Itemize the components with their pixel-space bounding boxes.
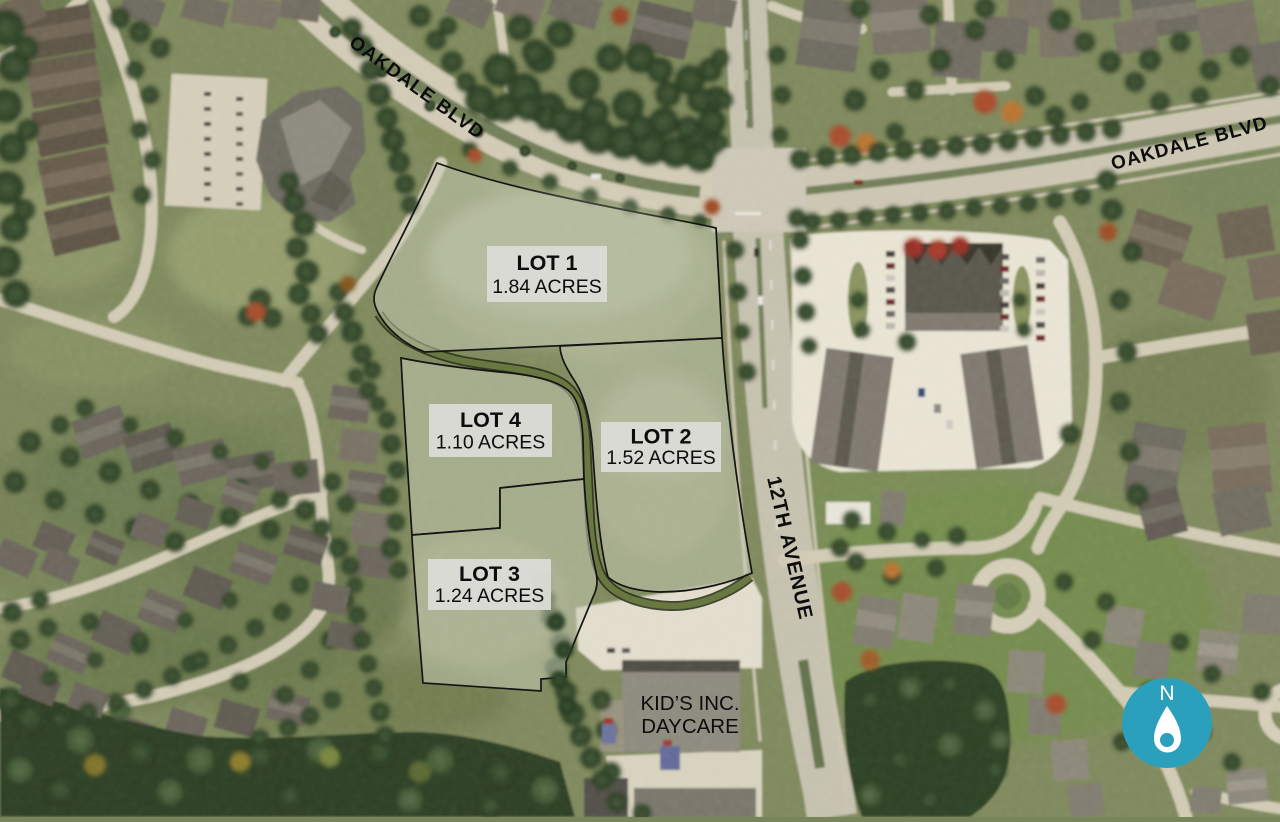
svg-text:LOT 4: LOT 4 xyxy=(460,408,521,432)
svg-text:LOT 1: LOT 1 xyxy=(517,251,578,275)
svg-text:1.10 ACRES: 1.10 ACRES xyxy=(436,432,545,454)
svg-text:LOT 3: LOT 3 xyxy=(459,562,520,586)
svg-text:KID’S INC.: KID’S INC. xyxy=(640,692,739,715)
svg-text:1.84 ACRES: 1.84 ACRES xyxy=(492,276,601,298)
svg-text:N: N xyxy=(1159,682,1174,705)
svg-text:1.52 ACRES: 1.52 ACRES xyxy=(606,447,715,469)
svg-text:LOT 2: LOT 2 xyxy=(631,425,692,449)
svg-text:DAYCARE: DAYCARE xyxy=(641,715,739,738)
svg-text:1.24 ACRES: 1.24 ACRES xyxy=(435,585,544,607)
